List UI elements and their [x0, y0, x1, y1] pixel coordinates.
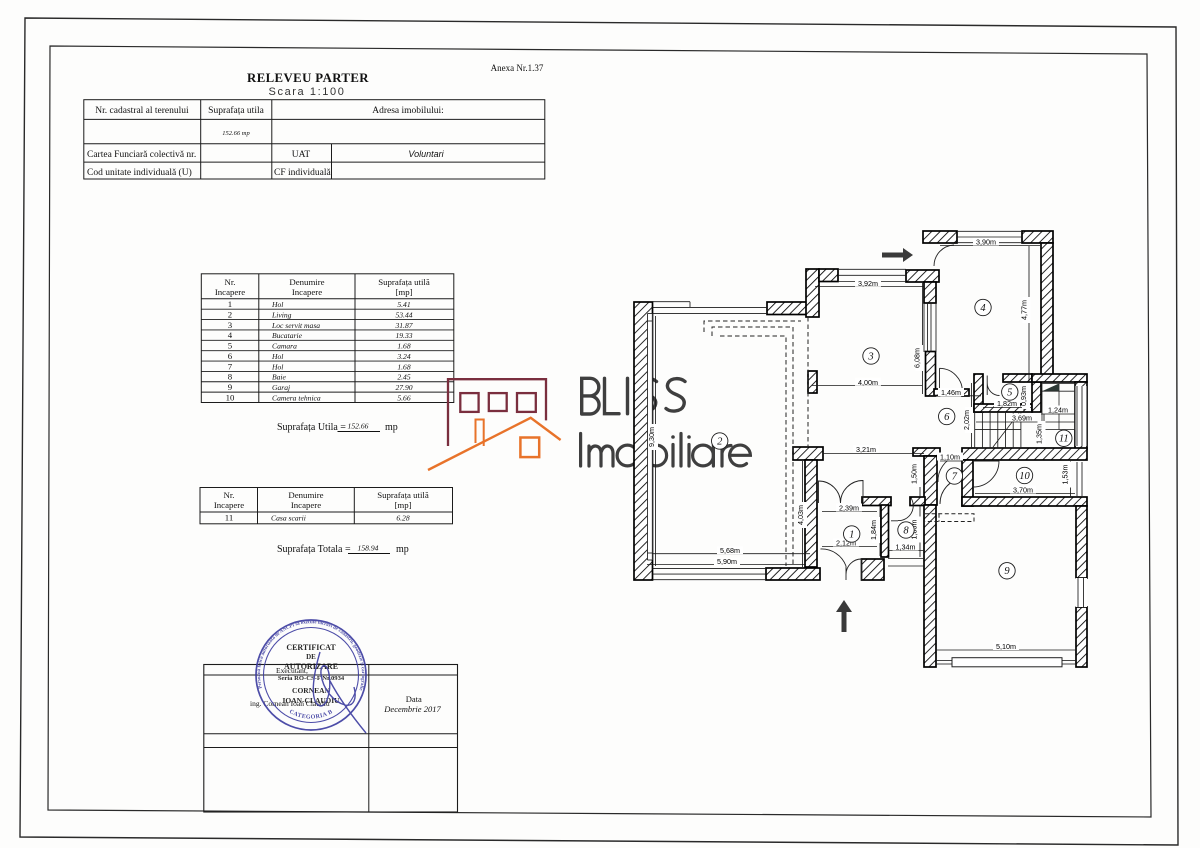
svg-text:Incapere: Incapere [291, 500, 321, 510]
svg-text:8: 8 [903, 525, 909, 536]
svg-text:1: 1 [849, 529, 854, 540]
svg-text:1.68: 1.68 [397, 342, 410, 351]
svg-text:4,00m: 4,00m [858, 378, 878, 387]
svg-text:Loc servit masa: Loc servit masa [271, 321, 320, 330]
svg-text:1,53m: 1,53m [1061, 465, 1070, 485]
svg-text:Nr.: Nr. [225, 277, 236, 287]
svg-text:1,46m: 1,46m [941, 388, 961, 397]
svg-text:11: 11 [225, 513, 233, 523]
svg-text:2.45: 2.45 [397, 373, 410, 382]
svg-text:Hol: Hol [271, 352, 283, 361]
svg-text:RELEVEU PARTER: RELEVEU PARTER [247, 71, 369, 85]
svg-text:Anexa Nr.1.37: Anexa Nr.1.37 [491, 63, 544, 73]
svg-text:Decembrie 2017: Decembrie 2017 [383, 704, 441, 714]
svg-text:Voluntari: Voluntari [408, 149, 444, 159]
svg-text:6,08m: 6,08m [913, 348, 922, 368]
svg-text:Suprafața Totala =: Suprafața Totala = [277, 544, 351, 555]
svg-text:31.87: 31.87 [394, 321, 413, 330]
svg-text:5: 5 [1007, 387, 1012, 398]
svg-text:Incapere: Incapere [214, 500, 244, 510]
svg-text:CF individuală: CF individuală [274, 168, 332, 178]
svg-text:19.33: 19.33 [395, 331, 412, 340]
svg-text:AUTORIZARE: AUTORIZARE [284, 662, 338, 671]
svg-text:9,30m: 9,30m [647, 427, 656, 447]
svg-text:1,50m: 1,50m [910, 464, 919, 484]
svg-text:Denumire: Denumire [288, 490, 323, 500]
svg-text:Hol: Hol [271, 362, 283, 371]
svg-text:8: 8 [228, 372, 233, 382]
svg-text:Scara 1:100: Scara 1:100 [269, 86, 346, 98]
svg-text:Casa scarii: Casa scarii [271, 514, 306, 523]
svg-text:3: 3 [867, 351, 873, 362]
svg-text:Seria RO-CS-F Nr.0934: Seria RO-CS-F Nr.0934 [278, 675, 345, 682]
svg-text:Denumire: Denumire [289, 277, 324, 287]
svg-text:Baie: Baie [272, 373, 287, 382]
svg-text:27.90: 27.90 [395, 383, 412, 392]
svg-text:3,69m: 3,69m [1012, 414, 1032, 423]
svg-text:[mp]: [mp] [394, 500, 411, 510]
svg-text:9: 9 [1004, 566, 1010, 577]
svg-text:CERTIFICAT: CERTIFICAT [286, 643, 336, 652]
svg-text:Suprafața utilă: Suprafața utilă [377, 490, 429, 500]
svg-text:1,34m: 1,34m [896, 543, 916, 552]
svg-text:Incapere: Incapere [292, 287, 322, 297]
svg-text:Suprafața Utila =: Suprafața Utila = [277, 422, 346, 433]
svg-text:1,82m: 1,82m [997, 399, 1017, 408]
svg-text:Hol: Hol [271, 300, 283, 309]
svg-text:152.66: 152.66 [348, 422, 369, 431]
svg-text:2: 2 [717, 436, 723, 447]
svg-text:4: 4 [228, 330, 233, 340]
svg-text:11: 11 [1059, 434, 1069, 445]
svg-text:158.94: 158.94 [358, 544, 379, 553]
svg-text:9: 9 [228, 382, 233, 392]
svg-text:Nr.: Nr. [224, 490, 235, 500]
svg-text:Camara: Camara [272, 342, 297, 351]
svg-text:3.24: 3.24 [396, 352, 410, 361]
svg-text:Suprafața utilă: Suprafața utilă [378, 277, 430, 287]
svg-text:mp: mp [385, 422, 398, 433]
svg-text:1,24m: 1,24m [1048, 406, 1068, 415]
svg-text:53.44: 53.44 [395, 311, 412, 320]
svg-text:Bucatarie: Bucatarie [272, 331, 303, 340]
svg-text:Adresa imobilului:: Adresa imobilului: [372, 106, 444, 116]
svg-text:2,02m: 2,02m [962, 410, 971, 430]
svg-text:mp: mp [396, 544, 409, 555]
svg-text:5: 5 [228, 341, 233, 351]
svg-text:3: 3 [228, 320, 233, 330]
svg-text:1,35m: 1,35m [1035, 424, 1044, 444]
svg-text:Cartea Funciară colectivă nr.: Cartea Funciară colectivă nr. [87, 150, 196, 160]
svg-text:10: 10 [1019, 471, 1030, 482]
svg-text:Camera tehnica: Camera tehnica [272, 393, 321, 402]
svg-text:3,90m: 3,90m [976, 238, 996, 247]
svg-text:Data: Data [406, 694, 422, 704]
svg-text:6.28: 6.28 [396, 514, 409, 523]
svg-text:7: 7 [228, 361, 233, 371]
svg-text:1: 1 [228, 299, 232, 309]
svg-text:152.66 mp: 152.66 mp [222, 130, 250, 137]
svg-text:6: 6 [228, 351, 233, 361]
svg-text:1,10m: 1,10m [940, 453, 960, 462]
svg-text:7: 7 [952, 471, 958, 482]
svg-text:2: 2 [228, 310, 232, 320]
svg-text:UAT: UAT [292, 150, 311, 160]
svg-text:10: 10 [226, 392, 235, 402]
svg-text:3,92m: 3,92m [858, 279, 878, 288]
svg-text:5,10m: 5,10m [996, 642, 1016, 651]
svg-text:1.68: 1.68 [397, 362, 410, 371]
svg-text:Nr. cadastral al terenului: Nr. cadastral al terenului [95, 106, 189, 116]
svg-text:2,39m: 2,39m [839, 504, 859, 513]
svg-text:5,68m: 5,68m [720, 546, 740, 555]
svg-text:0,93m: 0,93m [1019, 386, 1028, 406]
svg-text:3,70m: 3,70m [1013, 486, 1033, 495]
svg-text:Living: Living [271, 311, 292, 320]
svg-text:DE: DE [306, 653, 316, 661]
svg-text:3,21m: 3,21m [856, 445, 876, 454]
svg-text:Suprafața utila: Suprafața utila [208, 105, 264, 116]
svg-text:[mp]: [mp] [395, 287, 412, 297]
svg-text:5.41: 5.41 [397, 300, 410, 309]
svg-text:Cod unitate individuală (U): Cod unitate individuală (U) [87, 167, 192, 178]
svg-text:5.66: 5.66 [397, 393, 410, 402]
svg-text:5,90m: 5,90m [717, 557, 737, 566]
svg-text:6: 6 [944, 412, 950, 423]
svg-text:4,77m: 4,77m [1020, 300, 1029, 320]
svg-text:Incapere: Incapere [215, 287, 245, 297]
svg-text:1,84m: 1,84m [869, 520, 878, 540]
svg-text:4,03m: 4,03m [796, 505, 805, 525]
svg-text:Garaj: Garaj [272, 383, 290, 392]
svg-text:4: 4 [980, 303, 986, 314]
